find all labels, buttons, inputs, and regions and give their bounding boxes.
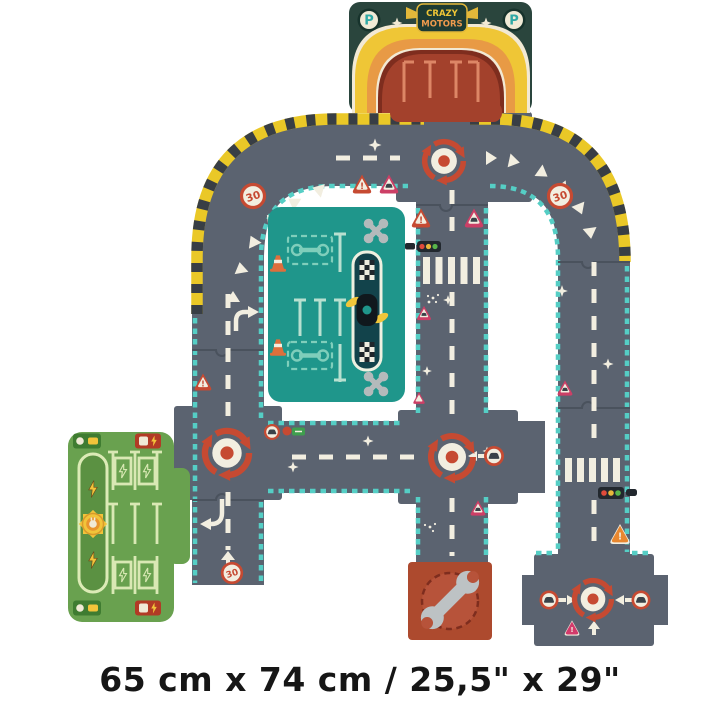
charger-icon (135, 601, 161, 616)
traffic-light-icon (598, 487, 637, 499)
svg-text:P: P (364, 14, 374, 29)
speed-limit-sign: 30 (222, 563, 242, 583)
checkered-flag (360, 342, 375, 362)
parking-badge: P (503, 9, 526, 32)
svg-text:!: ! (360, 182, 364, 192)
rainbow-arch (352, 24, 530, 113)
garage-tab (390, 102, 502, 122)
car-sign (632, 591, 651, 610)
svg-text:P: P (509, 14, 519, 29)
svg-text:MOTORS: MOTORS (421, 20, 462, 30)
repair-end-piece (408, 562, 492, 640)
parking-badge: P (358, 9, 381, 32)
svg-text:CRAZY: CRAZY (426, 9, 459, 19)
svg-text:!: ! (618, 531, 622, 542)
traffic-light-icon (405, 241, 441, 252)
charging-station-piece (68, 432, 190, 622)
svg-text:!: ! (419, 216, 423, 226)
brand-shield: CRAZY MOTORS (406, 4, 478, 32)
charger-icon (73, 434, 101, 449)
checkered-flag (360, 260, 375, 280)
service-garage-piece (268, 207, 405, 402)
speed-limit-sign: 30 (242, 185, 265, 208)
car-sign (264, 424, 280, 440)
mini-sign (283, 427, 292, 436)
svg-text:!: ! (201, 379, 205, 389)
road-puzzle-image: 30 30 30 ! ! ! ! (0, 0, 720, 655)
charger-icon (73, 601, 101, 616)
svg-text:!: ! (570, 625, 573, 634)
car-sign (540, 591, 559, 610)
car-sign (484, 446, 504, 466)
sun-plug-icon (79, 510, 107, 538)
parking-garage-piece: P P CRAZY MOTORS (349, 2, 532, 122)
dimensions-caption: 65 cm x 74 cm / 25,5" x 29" (0, 660, 720, 699)
speed-limit-sign: 30 (549, 185, 572, 208)
charger-icon (135, 434, 161, 449)
